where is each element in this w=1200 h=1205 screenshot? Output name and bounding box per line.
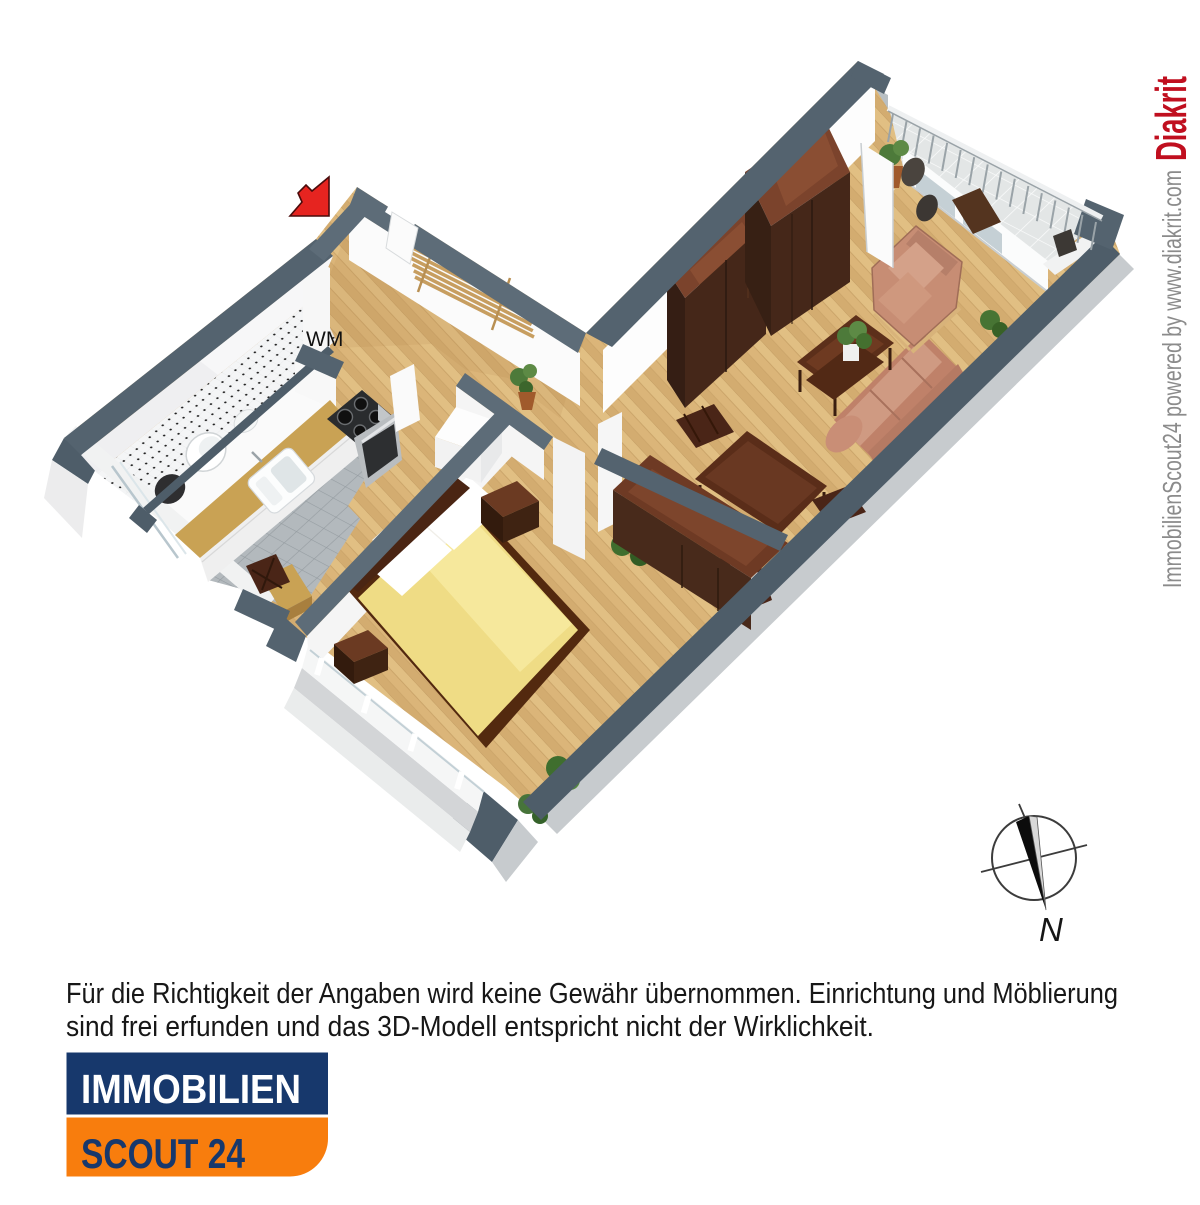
svg-text:Diakrit: Diakrit bbox=[1147, 76, 1196, 161]
svg-text:WM: WM bbox=[306, 328, 343, 351]
svg-text:SCOUT 24: SCOUT 24 bbox=[81, 1130, 246, 1177]
svg-text:sind frei erfunden und das 3D-: sind frei erfunden und das 3D-Modell ent… bbox=[66, 1011, 874, 1043]
svg-text:ImmobilienScout24 powered by w: ImmobilienScout24 powered by www.diakrit… bbox=[1157, 170, 1187, 588]
svg-text:Für die Richtigkeit der Angabe: Für die Richtigkeit der Angaben wird kei… bbox=[66, 978, 1118, 1010]
svg-text:N: N bbox=[1039, 911, 1063, 948]
svg-text:IMMOBILIEN: IMMOBILIEN bbox=[81, 1066, 301, 1112]
